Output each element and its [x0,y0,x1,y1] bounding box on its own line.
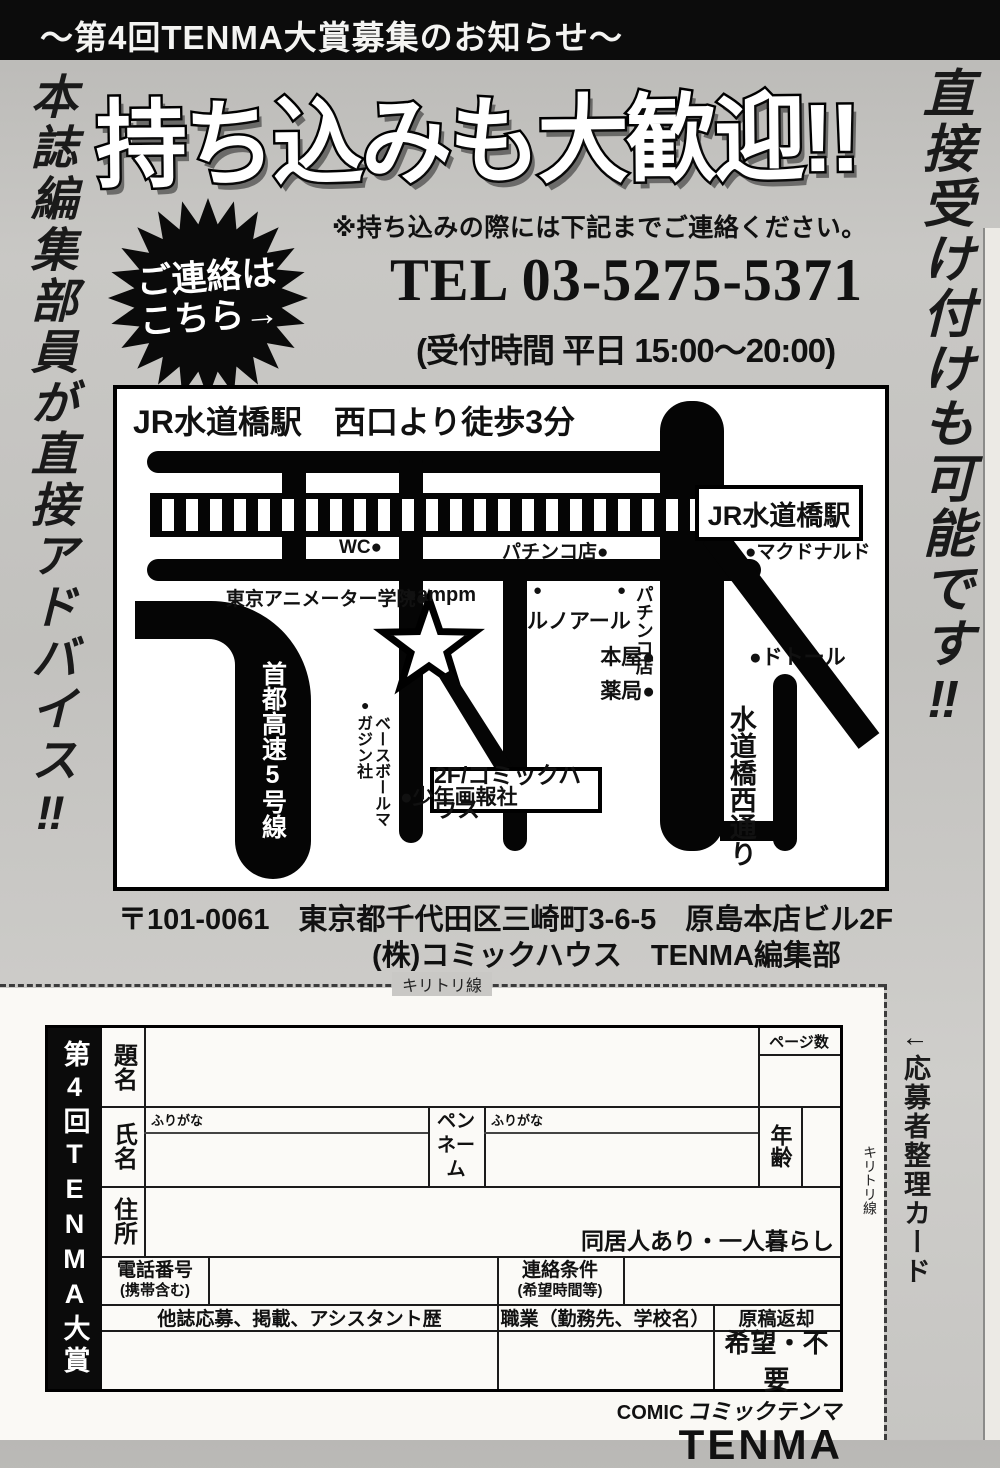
pages-input-cell [758,1054,840,1106]
map-title: JR水道橋駅 西口より徒歩3分 [133,397,575,443]
submission-note: ※持ち込みの際には下記までご連絡ください。 [332,208,867,244]
address-line2: (株)コミックハウス TENMA編集部 [372,932,841,974]
contact-burst: ご連絡は こちら→ [104,198,312,398]
furigana-label-1: ふりがな [151,1110,203,1129]
top-banner-text: ～第4回TENMA大賞募集のお知らせ～ [40,11,623,59]
railway-track [150,493,698,537]
contact-label-line1: 連絡条件 [522,1260,598,1283]
access-map: JR水道橋駅 西口より徒歩3分 JR水道橋駅 WC● パチンコ店● ●マクドナル… [113,385,889,891]
scan-page-edge [983,228,1000,1440]
field-phone-label: 電話番号 (携帯含む) [102,1256,208,1304]
map-label-wc: WC● [339,537,382,559]
map-label-baseball-magazine: ベースボールマガジン社 [347,715,389,827]
furigana-label-2: ふりがな [491,1110,543,1129]
cut-line-label: キリトリ線 [392,972,492,996]
logo-kana: コミックテンマ [686,1394,847,1426]
logo-comic: COMIC [617,1402,684,1424]
penname-line1: ペン [437,1110,475,1134]
map-label-ampm: ●ampm [405,584,476,607]
award-title: 第4回TENMA大賞 [56,1040,95,1378]
destination-star-icon [383,599,474,686]
field-title-label: 題名 [102,1028,144,1106]
map-label-animator-school: 東京アニメーター学院● [207,584,427,611]
top-banner: ～第4回TENMA大賞募集のお知らせ～ [0,0,1000,60]
map-dot-baseball: ● [361,697,369,713]
penname-line2: ネーム [428,1134,484,1182]
reception-hours: (受付時間 平日 15:00～20:00) [416,324,835,372]
tenma-logo: COMIC コミックテンマ TENMA [560,1394,843,1464]
map-dot-renoir-1: ● [533,582,542,599]
field-history-label: 他誌応募、掲載、アシスタント歴 [102,1304,497,1330]
station-label: JR水道橋駅 [695,485,863,541]
map-label-mcdonalds: ●マクドナルド [745,537,870,564]
map-dot-renoir-2: ● [617,582,626,599]
main-title: 持ち込みも大歓迎!! [95,59,951,207]
return-options: 希望・不要 [713,1330,840,1389]
entry-card-note: ←応募者整理カード [896,1022,935,1286]
map-label-street: 水道橋西通り [725,705,755,890]
cut-line-vertical-label: キリトリ線 [860,1145,880,1215]
map-label-expressway: 首都高速5号線 [258,661,286,883]
award-title-bar: 第4回TENMA大賞 [48,1028,102,1389]
field-name-label: 氏名 [102,1106,144,1186]
field-contact-label: 連絡条件 (希望時間等) [497,1256,623,1304]
map-label-shonen-gahosha: ●少年画報社 [400,781,518,811]
logo-tenma: TENMA [560,1426,843,1464]
field-address-label: 住所 [102,1186,144,1256]
left-vertical-headline: 本誌編集部員が直接アドバイス‼ [6,72,94,972]
contact-label-line2: (希望時間等) [518,1282,603,1300]
burst-line2: こちら→ [138,293,280,343]
phone-number: TEL 03-5275-5371 [390,246,863,315]
map-label-bookstore: 本屋● [565,641,655,671]
application-form: 第4回TENMA大賞 題名 ページ数 氏名 ふりがな ふりがな ペン ネーム [45,1025,843,1392]
field-age-label: 年齢 [758,1106,801,1186]
field-pages-label: ページ数 [758,1028,840,1054]
field-penname-label: ペン ネーム [428,1106,484,1186]
field-occupation-label: 職業（勤務先、学校名） [497,1304,713,1330]
contact-burst-text: ご連絡は こちら→ [97,191,318,405]
map-label-pachinko-north: パチンコ店● [502,537,608,564]
map-label-pharmacy: 薬局● [565,675,655,705]
phone-label-line2: (携帯含む) [120,1282,190,1300]
map-label-doutor: ●ドトール [749,641,846,671]
cut-line-vertical [884,984,887,1440]
living-status-note: 同居人あり・一人暮らし [548,1224,834,1254]
phone-label-line1: 電話番号 [117,1260,193,1283]
map-label-renoir: ルノアール [527,605,631,635]
